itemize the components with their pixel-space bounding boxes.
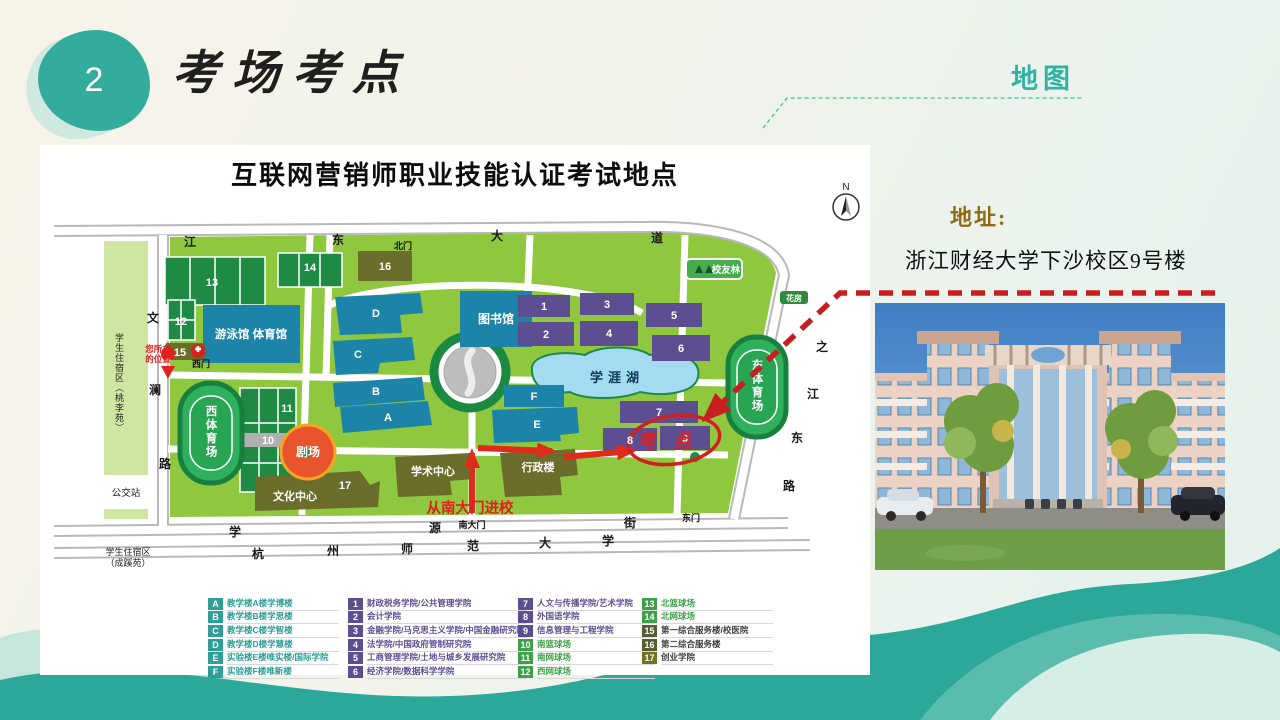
label-library: 图书馆 — [478, 311, 514, 326]
label-lake: 学涯湖 — [590, 370, 644, 385]
slide: 2 考场考点 地图 互联网营销师职业技能认证考试地点 — [0, 0, 1280, 720]
legend-label: 西网球场 — [537, 665, 655, 679]
map-marker-D: D — [372, 308, 380, 320]
label-west-stadium: 西体育场 — [204, 405, 216, 459]
road-left-char: 文 — [147, 310, 160, 325]
legend-item: 9信息管理与工程学院 — [518, 624, 655, 637]
road-univ-char: 范 — [467, 538, 479, 553]
compass-north: N — [842, 182, 849, 193]
label-swim-gym: 游泳馆 体育馆 — [215, 327, 288, 341]
road-right-char: 东 — [791, 430, 803, 445]
road-right-char: 江 — [807, 386, 819, 401]
legend-badge: B — [208, 611, 223, 623]
legend-item: 12西网球场 — [518, 665, 655, 678]
legend-item: A教学楼A楼学博楼 — [208, 597, 339, 610]
map-marker-11: 11 — [281, 403, 293, 415]
legend-label: 实验楼F楼唯新楼 — [227, 665, 339, 679]
legend-badge: 7 — [518, 598, 533, 610]
map-marker-6: 6 — [678, 343, 684, 355]
campus-map-panel: 互联网营销师职业技能认证考试地点 — [40, 145, 870, 675]
legend-label: 金融学院/马克思主义学院/中国金融研究院 — [367, 624, 527, 638]
legend-item: 5工商管理学院/土地与城乡发展研究院 — [348, 652, 527, 665]
road-street-char: 源 — [429, 520, 441, 535]
legend-badge: 15 — [642, 625, 657, 637]
label-you-are-here: 的位置 — [145, 354, 171, 364]
legend-item: 2会计学院 — [348, 611, 527, 624]
label-you-are-here: 您所在 — [145, 344, 171, 354]
legend-badge: 6 — [348, 666, 363, 678]
legend-badge: D — [208, 639, 223, 651]
tab-map-label: 地图 — [998, 57, 1088, 96]
label-admin-building: 行政楼 — [521, 460, 555, 474]
legend-column: 13北篮球场14北网球场15第一综合服务楼/校医院16第二综合服务楼17创业学院 — [642, 597, 773, 665]
legend-label: 南篮球场 — [537, 638, 655, 652]
gate-south: 南大门 — [458, 519, 485, 530]
legend-badge: 1 — [348, 598, 363, 610]
legend-item: 1财政税务学院/公共管理学院 — [348, 597, 527, 610]
legend-column: A教学楼A楼学博楼B教学楼B楼学思楼C教学楼C楼学智楼D教学楼D楼学慧楼E实验楼… — [208, 597, 339, 679]
legend-badge: F — [208, 666, 223, 678]
map-marker-14: 14 — [304, 262, 317, 274]
label-culture-center: 文化中心 — [273, 489, 317, 503]
label-academic-center: 学术中心 — [411, 464, 455, 478]
legend-badge: 16 — [642, 639, 657, 651]
legend-item: 10南篮球场 — [518, 638, 655, 651]
legend-label: 教学楼C楼学智楼 — [227, 624, 339, 638]
road-left-char: 路 — [159, 456, 172, 471]
road-street-char: 学 — [229, 524, 241, 539]
road-univ-char: 师 — [401, 541, 413, 556]
map-marker-17: 17 — [339, 480, 351, 492]
building-photo — [875, 303, 1225, 570]
address-label: 地址: — [950, 200, 1240, 232]
road-top-char: 东 — [332, 232, 344, 247]
road-univ-char: 杭 — [252, 546, 264, 561]
legend-item: 11南网球场 — [518, 652, 655, 665]
label-alumni-forest: 校友林 — [712, 264, 741, 276]
road-right-char: 之 — [816, 339, 828, 354]
gate-north: 北门 — [394, 240, 412, 251]
legend-item: 14北网球场 — [642, 611, 773, 624]
legend-item: 17创业学院 — [642, 652, 773, 665]
map-marker-16: 16 — [379, 261, 391, 273]
label-exam-site: 考点 — [639, 430, 709, 452]
legend-item: C教学楼C楼学智楼 — [208, 624, 339, 637]
legend-item: 4法学院/中国政府管制研究院 — [348, 638, 527, 651]
road-univ-char: 州 — [326, 544, 339, 558]
legend-badge: A — [208, 598, 223, 610]
map-legend: A教学楼A楼学博楼B教学楼B楼学思楼C教学楼C楼学智楼D教学楼D楼学慧楼E实验楼… — [40, 595, 870, 675]
map-marker-C: C — [354, 349, 362, 361]
section-number: 2 — [85, 61, 104, 100]
map-marker-13: 13 — [206, 277, 218, 289]
page-title: 考场考点 — [172, 34, 412, 103]
legend-item: B教学楼B楼学思楼 — [208, 611, 339, 624]
legend-column: 7人文与传播学院/艺术学院8外国语学院9信息管理与工程学院10南篮球场11南网球… — [518, 597, 655, 679]
legend-label: 人文与传播学院/艺术学院 — [537, 597, 655, 611]
label-flower-house: 花房 — [786, 293, 802, 303]
legend-label: 会计学院 — [367, 610, 527, 624]
road-street-char: 街 — [623, 515, 636, 530]
road-top-char: 道 — [651, 230, 663, 245]
legend-badge: 5 — [348, 652, 363, 664]
road-univ-char: 学 — [602, 533, 614, 548]
map-marker-4: 4 — [606, 328, 613, 340]
map-marker-8: 8 — [627, 435, 633, 447]
label-dorm-south-line2: （成蹊苑） — [105, 558, 150, 568]
map-marker-15: 15 — [174, 347, 186, 359]
map-marker-2: 2 — [543, 329, 549, 341]
legend-label: 南网球场 — [537, 651, 655, 665]
legend-badge: 9 — [518, 625, 533, 637]
legend-badge: C — [208, 625, 223, 637]
map-marker-3: 3 — [604, 299, 610, 311]
legend-item: 6经济学院/数据科学学院 — [348, 665, 527, 678]
label-dorm-south-line1: 学生住宿区 — [105, 547, 150, 557]
legend-badge: 17 — [642, 652, 657, 664]
legend-badge: 13 — [642, 598, 657, 610]
legend-column: 1财政税务学院/公共管理学院2会计学院3金融学院/马克思主义学院/中国金融研究院… — [348, 597, 527, 679]
map-marker-F: F — [531, 391, 538, 403]
label-dorm-west: 学生住宿区（桃李苑） — [114, 333, 123, 433]
legend-badge: 11 — [518, 652, 533, 664]
map-marker-B: B — [372, 386, 380, 398]
map-marker-5: 5 — [671, 310, 677, 322]
map-marker-A: A — [384, 412, 392, 424]
map-marker-E: E — [533, 419, 540, 431]
legend-label: 第二综合服务楼 — [661, 638, 773, 652]
legend-badge: 10 — [518, 639, 533, 651]
gate-west: 西门 — [192, 358, 210, 369]
legend-item: 7人文与传播学院/艺术学院 — [518, 597, 655, 610]
legend-label: 教学楼B楼学思楼 — [227, 610, 339, 624]
address-block: 地址: 浙江财经大学下沙校区9号楼 — [905, 200, 1240, 275]
legend-label: 北篮球场 — [661, 597, 773, 611]
legend-item: 8外国语学院 — [518, 611, 655, 624]
legend-label: 实验楼E楼唯实楼/国际学院 — [227, 651, 339, 665]
label-bus-stop: 公交站 — [112, 487, 141, 499]
label-enter-route: 从南大门进校 — [427, 499, 514, 517]
label-dorm-south: 学生住宿区 （成蹊苑） — [86, 547, 170, 570]
legend-badge: 3 — [348, 625, 363, 637]
legend-item: 13北篮球场 — [642, 597, 773, 610]
legend-badge: 4 — [348, 639, 363, 651]
legend-label: 教学楼A楼学博楼 — [227, 597, 339, 611]
road-left-char: 澜 — [149, 383, 161, 397]
map-marker-1: 1 — [541, 301, 547, 313]
road-top-char: 大 — [491, 228, 503, 243]
legend-label: 外国语学院 — [537, 610, 655, 624]
legend-item: 16第二综合服务楼 — [642, 638, 773, 651]
map-marker-10: 10 — [262, 435, 274, 447]
map-marker-7: 7 — [656, 407, 662, 419]
road-right-char: 路 — [783, 478, 796, 493]
legend-label: 第一综合服务楼/校医院 — [661, 624, 773, 638]
label-east-stadium: 东体育场 — [750, 359, 762, 413]
legend-item: 15第一综合服务楼/校医院 — [642, 624, 773, 637]
legend-badge: E — [208, 652, 223, 664]
legend-label: 北网球场 — [661, 610, 773, 624]
map-marker-12: 12 — [175, 316, 187, 328]
legend-item: F实验楼F楼唯新楼 — [208, 665, 339, 678]
legend-badge: 8 — [518, 611, 533, 623]
road-univ-char: 大 — [539, 535, 551, 550]
legend-badge: 2 — [348, 611, 363, 623]
legend-label: 工商管理学院/土地与城乡发展研究院 — [367, 651, 527, 665]
address-value: 浙江财经大学下沙校区9号楼 — [905, 244, 1240, 275]
legend-label: 教学楼D楼学慧楼 — [227, 638, 339, 652]
legend-badge: 12 — [518, 666, 533, 678]
legend-label: 创业学院 — [661, 651, 773, 665]
gate-east: 东门 — [682, 512, 700, 523]
label-theater: 剧场 — [296, 444, 320, 459]
legend-label: 信息管理与工程学院 — [537, 624, 655, 638]
legend-item: E实验楼E楼唯实楼/国际学院 — [208, 652, 339, 665]
legend-label: 法学院/中国政府管制研究院 — [367, 638, 527, 652]
legend-item: 3金融学院/马克思主义学院/中国金融研究院 — [348, 624, 527, 637]
road-top-char: 江 — [184, 234, 196, 249]
legend-label: 经济学院/数据科学学院 — [367, 665, 527, 679]
legend-label: 财政税务学院/公共管理学院 — [367, 597, 527, 611]
legend-badge: 14 — [642, 611, 657, 623]
legend-item: D教学楼D楼学慧楼 — [208, 638, 339, 651]
